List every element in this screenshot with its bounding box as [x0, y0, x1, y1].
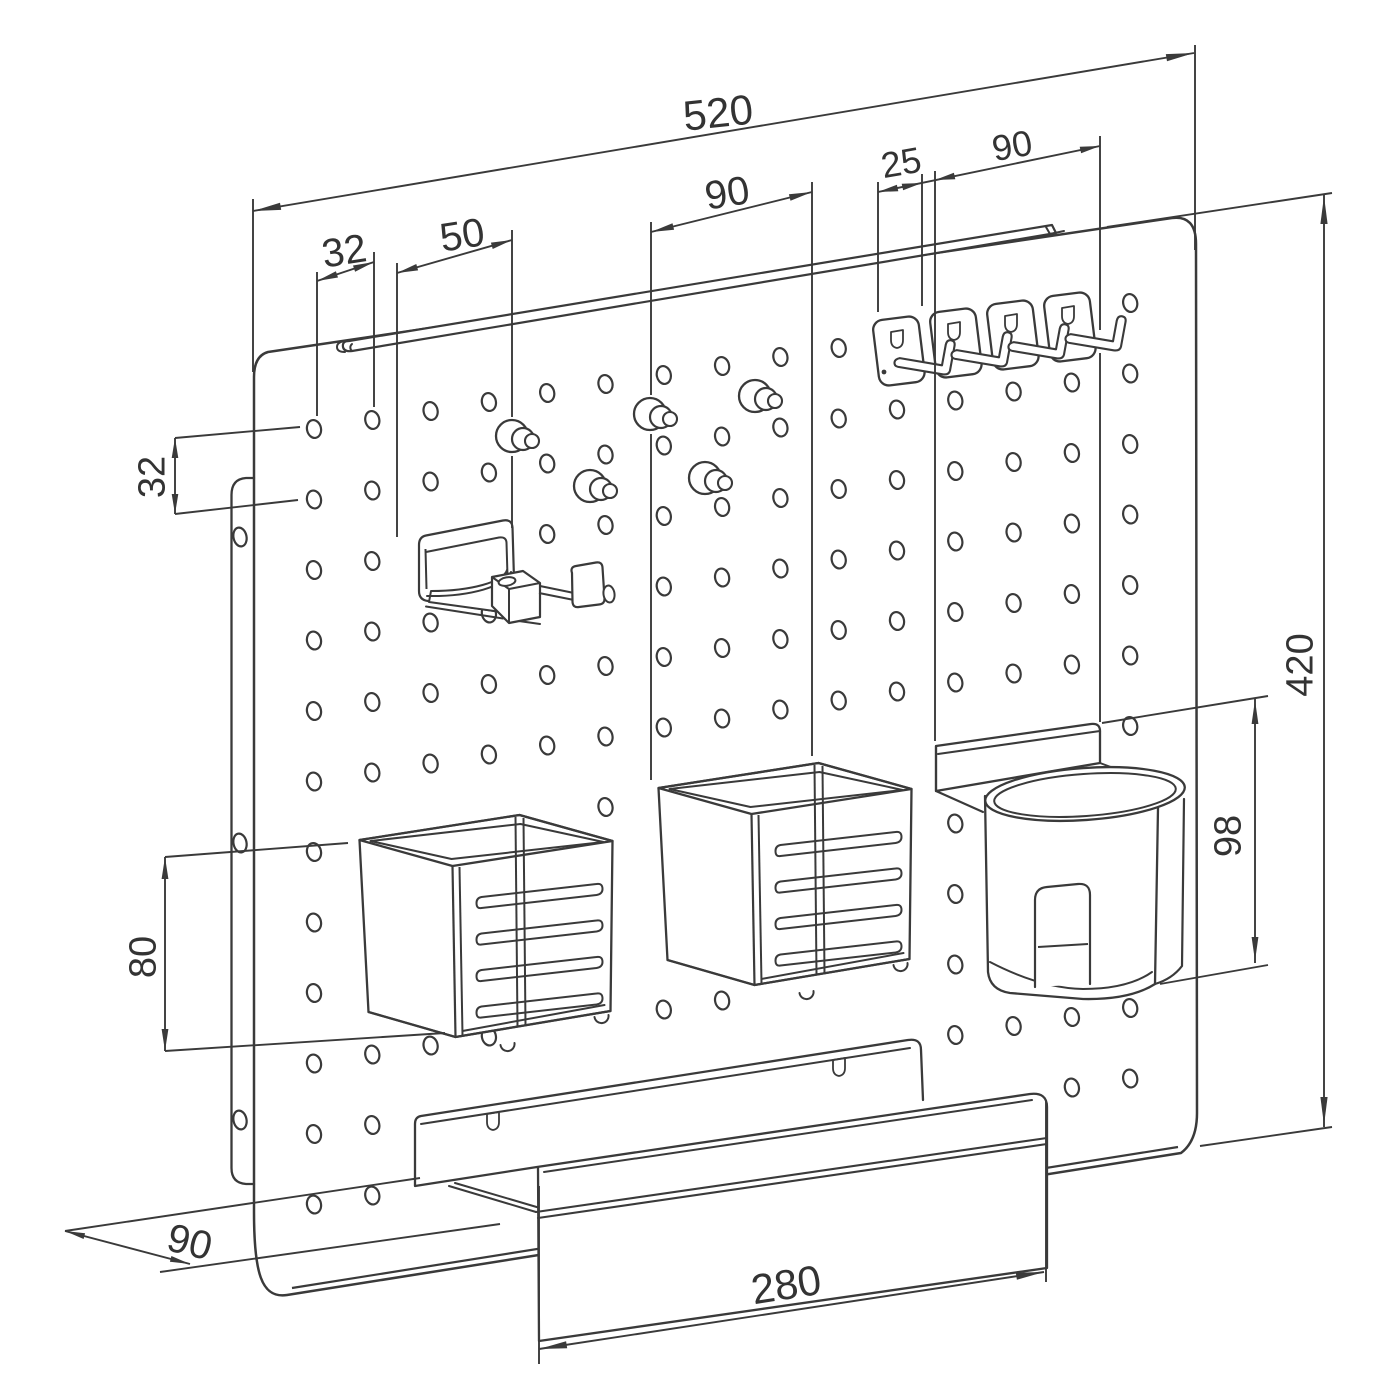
svg-text:80: 80: [123, 936, 165, 978]
svg-text:32: 32: [319, 226, 370, 276]
svg-text:520: 520: [681, 86, 756, 140]
svg-text:90: 90: [702, 168, 753, 218]
svg-text:98: 98: [1208, 815, 1250, 857]
svg-text:90: 90: [989, 122, 1036, 169]
svg-text:50: 50: [437, 210, 488, 260]
svg-text:420: 420: [1280, 633, 1322, 696]
svg-text:25: 25: [878, 139, 925, 186]
svg-text:32: 32: [132, 456, 174, 498]
